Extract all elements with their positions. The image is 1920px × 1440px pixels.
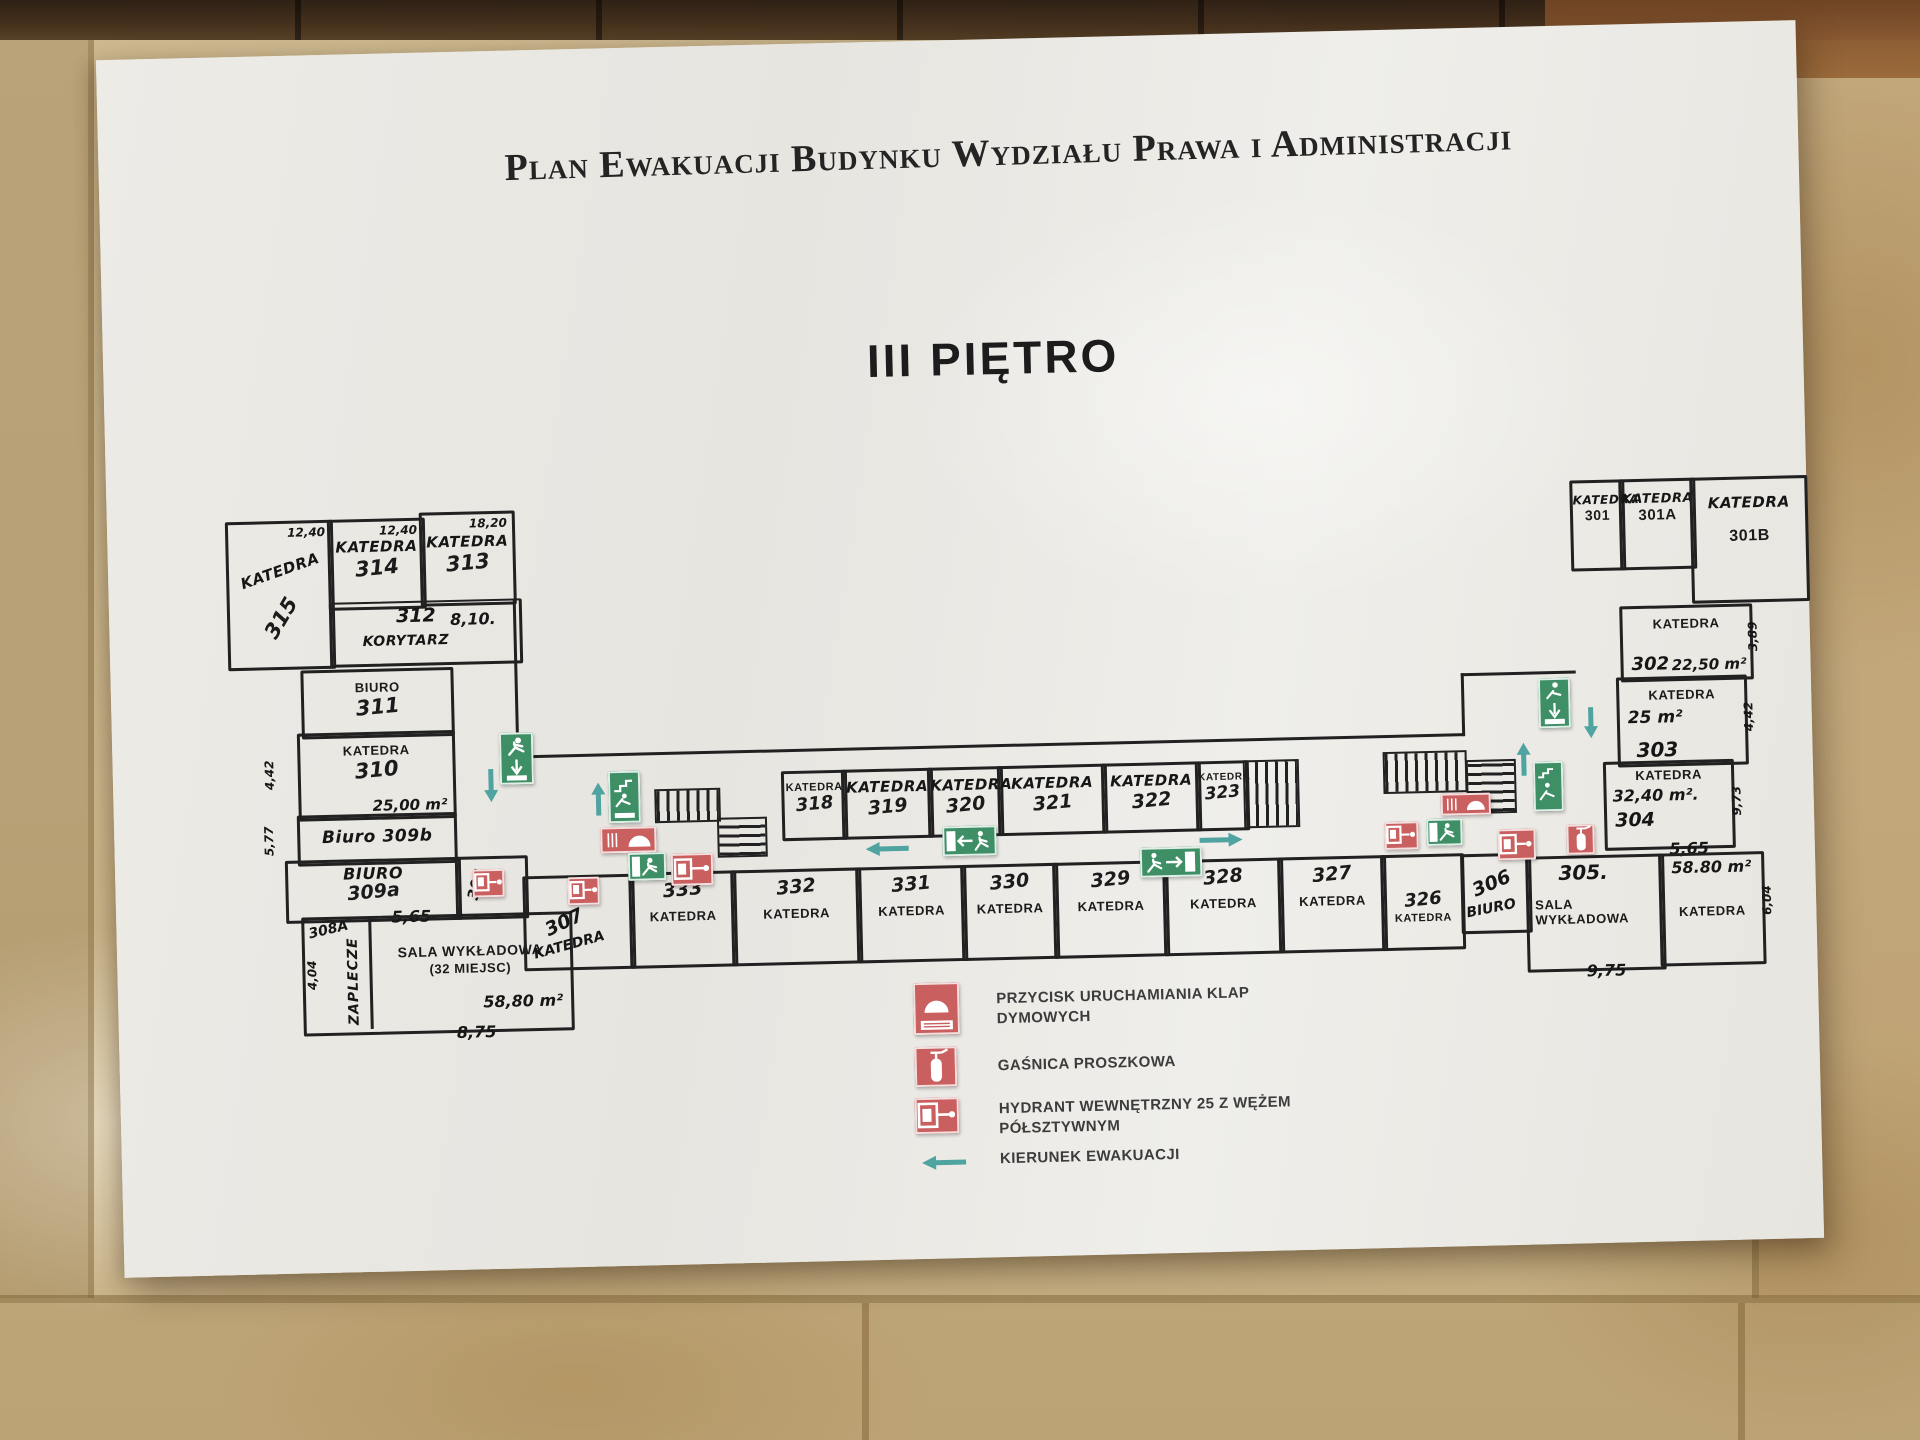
stairs-left-lower bbox=[717, 817, 768, 858]
room-302-number: 302 bbox=[1631, 653, 1669, 675]
room-304-type: KATEDRA bbox=[1606, 766, 1731, 784]
hydrant-icon bbox=[472, 869, 505, 898]
stairs-middle bbox=[1243, 759, 1301, 828]
room-330-number: 330 bbox=[963, 867, 1057, 897]
room-315: 12,40 KATEDRA 315 bbox=[225, 520, 336, 672]
room-301b-number: 301B bbox=[1693, 526, 1805, 547]
room-304-area: 32,40 m². bbox=[1612, 785, 1698, 806]
room-308a-number: 308A bbox=[307, 918, 350, 943]
room-310: KATEDRA 310 25,00 m² bbox=[297, 730, 457, 822]
smoke-flap-button-icon bbox=[1441, 793, 1492, 816]
room-326: 326 KATEDRA bbox=[1380, 853, 1466, 951]
room-301-type: KATEDRA bbox=[1573, 492, 1622, 507]
exit-sign-right-icon bbox=[1140, 846, 1203, 877]
photo-of-evacuation-plan: Plan Ewakuacji Budynku Wydziału Prawa i … bbox=[0, 0, 1920, 1440]
legend-label-extinguisher: GAŚNICA PROSZKOWA bbox=[998, 1049, 1298, 1076]
room-313: 18,20 KATEDRA 313 bbox=[419, 510, 517, 606]
room-304-dim-right: 9,73 bbox=[1729, 786, 1744, 816]
room-305: 305. SALA WYKŁADOWA 9,75 bbox=[1525, 853, 1667, 972]
room-331-type: KATEDRA bbox=[859, 902, 964, 919]
stairhall-wall-top bbox=[1461, 671, 1576, 677]
stair-exit-sign-icon bbox=[1533, 761, 1564, 812]
room-309b-dim-left: 5,77 bbox=[262, 826, 277, 856]
room-331: 331 KATEDRA bbox=[855, 865, 968, 964]
smoke-flap-button-icon bbox=[913, 982, 960, 1035]
corridor-312-number: 312 bbox=[396, 604, 436, 627]
smoke-flap-button-icon bbox=[600, 826, 657, 853]
room-319: KATEDRA 319 bbox=[841, 768, 935, 840]
room-318: KATEDRA 318 bbox=[781, 770, 849, 842]
room-321: KATEDRA 321 bbox=[997, 764, 1109, 837]
room-330-type: KATEDRA bbox=[964, 900, 1056, 917]
room-301a-type: KATEDRA bbox=[1621, 491, 1692, 508]
room-309b-label: Biuro 309b bbox=[300, 825, 454, 849]
room-327: 327 KATEDRA bbox=[1277, 855, 1388, 954]
wall-left-strip bbox=[0, 40, 88, 1298]
room-315-dim: 12,40 bbox=[287, 525, 325, 540]
stairs-right-upper bbox=[1383, 750, 1468, 794]
evacuation-arrow-down bbox=[484, 767, 499, 803]
room-332-number: 332 bbox=[733, 870, 860, 904]
room-314-dim: 12,40 bbox=[379, 523, 417, 538]
room-333-type: KATEDRA bbox=[632, 907, 734, 924]
grout-line-bottom-v2 bbox=[1738, 1303, 1745, 1440]
room-315-type: KATEDRA bbox=[229, 546, 331, 597]
sala-area: 58,80 m² bbox=[483, 990, 563, 1011]
room-320-number: 320 bbox=[930, 791, 1002, 819]
room-314: 12,40 KATEDRA 314 bbox=[327, 518, 427, 611]
room-301b-type: KATEDRA bbox=[1693, 492, 1805, 513]
fire-extinguisher-icon bbox=[914, 1046, 957, 1087]
room-311: BIURO 311 bbox=[300, 667, 455, 740]
room-302-dim: 3,89 bbox=[1745, 621, 1760, 651]
exit-sign-icon bbox=[628, 852, 667, 881]
stairs-left-upper bbox=[654, 788, 721, 824]
room-306: 306 BIURO bbox=[1460, 853, 1533, 935]
corridor-312-label: KORYTARZ bbox=[362, 632, 449, 650]
room-310-dim-left: 4,42 bbox=[262, 760, 277, 790]
room-katedra-right-type: KATEDRA bbox=[1662, 902, 1762, 919]
room-302-type: KATEDRA bbox=[1622, 614, 1749, 632]
exit-sign-left-icon bbox=[942, 825, 997, 856]
room-329-type: KATEDRA bbox=[1056, 897, 1166, 915]
room-katedra-right-dim: 6,04 bbox=[1760, 885, 1775, 915]
legend-label-smoke-flap: PRZYCISK URUCHAMIANIA KLAP DYMOWYCH bbox=[996, 983, 1267, 1028]
room-303-type: KATEDRA bbox=[1619, 686, 1744, 704]
hydrant-icon bbox=[1497, 828, 1536, 860]
evacuation-arrow-icon bbox=[920, 1154, 968, 1171]
corridor-312: 312 8,10. KORYTARZ bbox=[329, 598, 523, 668]
room-katedra-right: 58.80 m² KATEDRA bbox=[1658, 851, 1767, 966]
room-303-number: 303 bbox=[1636, 737, 1678, 762]
evacuation-arrow-up bbox=[1516, 742, 1531, 778]
room-323-number: 323 bbox=[1198, 781, 1248, 805]
hydrant-icon bbox=[671, 853, 714, 886]
plan-title: Plan Ewakuacji Budynku Wydziału Prawa i … bbox=[238, 107, 1779, 198]
room-301b: KATEDRA 301B bbox=[1689, 475, 1810, 604]
room-326-number: 326 bbox=[1383, 886, 1463, 914]
evacuation-arrow-left bbox=[865, 841, 911, 856]
fire-extinguisher-icon bbox=[1566, 824, 1595, 855]
evacuation-arrow-down bbox=[1584, 705, 1599, 739]
room-302-area: 22,50 m² bbox=[1671, 654, 1746, 674]
room-332: 332 KATEDRA bbox=[730, 867, 863, 966]
hydrant-icon bbox=[915, 1097, 960, 1134]
room-327-type: KATEDRA bbox=[1281, 892, 1384, 909]
room-326-type: KATEDRA bbox=[1384, 911, 1462, 925]
room-328-type: KATEDRA bbox=[1166, 895, 1281, 913]
room-katedra-right-area: 58.80 m² bbox=[1671, 856, 1751, 877]
zaplecze-label: ZAPLECZE bbox=[345, 937, 363, 1025]
grout-line-bottom bbox=[0, 1295, 1920, 1303]
zaplecze-wall bbox=[368, 919, 374, 1029]
stair-exit-sign-icon bbox=[608, 771, 641, 824]
room-301a: KATEDRA 301A bbox=[1618, 478, 1697, 571]
sala-dim-bottom: 8,75 bbox=[457, 1022, 497, 1042]
hydrant-icon bbox=[1384, 821, 1419, 850]
room-301-number: 301 bbox=[1573, 506, 1622, 523]
evacuation-arrow-up bbox=[591, 781, 606, 817]
evacuation-plan-paper: Plan Ewakuacji Budynku Wydziału Prawa i … bbox=[96, 20, 1824, 1278]
legend-label-hydrant: HYDRANT WEWNĘTRZNY 25 Z WĘŻEM PÓŁSZTYWNY… bbox=[999, 1092, 1300, 1138]
room-332-type: KATEDRA bbox=[734, 904, 859, 922]
hydrant-icon bbox=[567, 877, 600, 906]
room-303-dim: 4,42 bbox=[1741, 701, 1756, 731]
room-302: KATEDRA 302 22,50 m² bbox=[1619, 603, 1754, 682]
room-301a-number: 301A bbox=[1622, 506, 1693, 525]
room-330: 330 KATEDRA bbox=[960, 863, 1060, 961]
exit-sign-down-icon bbox=[499, 732, 534, 785]
room-304-number: 304 bbox=[1615, 809, 1655, 832]
room-303: KATEDRA 25 m² 303 bbox=[1616, 674, 1749, 767]
room-313-dim: 18,20 bbox=[469, 516, 507, 531]
legend-label-direction: KIERUNEK EWAKUACJI bbox=[1000, 1142, 1300, 1169]
outer-wall-top bbox=[516, 733, 1464, 758]
room-318-number: 318 bbox=[784, 791, 846, 818]
stairhall-wall-left bbox=[1461, 673, 1465, 736]
exit-sign-icon bbox=[1426, 818, 1463, 846]
room-303-area: 25 m² bbox=[1628, 707, 1683, 728]
room-322: KATEDRA 322 bbox=[1101, 761, 1203, 833]
room-305-number: 305. bbox=[1558, 860, 1608, 885]
stair-exit-sign-icon bbox=[1538, 678, 1571, 729]
room-305-type: SALA WYKŁADOWA bbox=[1535, 895, 1646, 928]
room-327-number: 327 bbox=[1280, 859, 1385, 891]
evacuation-arrow-right bbox=[1197, 832, 1243, 847]
room-304: KATEDRA 32,40 m². 304 5,65 bbox=[1603, 759, 1736, 851]
grout-line-bottom-v1 bbox=[862, 1303, 869, 1440]
wall-bottom-strip bbox=[0, 1303, 1920, 1440]
corridor-312-dim: 8,10. bbox=[450, 609, 496, 629]
zaplecze-dim: 4,04 bbox=[305, 960, 320, 990]
room-305-dim: 9,75 bbox=[1587, 960, 1627, 980]
room-306-type: BIURO bbox=[1465, 896, 1517, 922]
floor-label: III PIĘTRO bbox=[183, 312, 1804, 404]
grout-line-left bbox=[88, 40, 94, 1298]
room-331-number: 331 bbox=[858, 868, 965, 900]
